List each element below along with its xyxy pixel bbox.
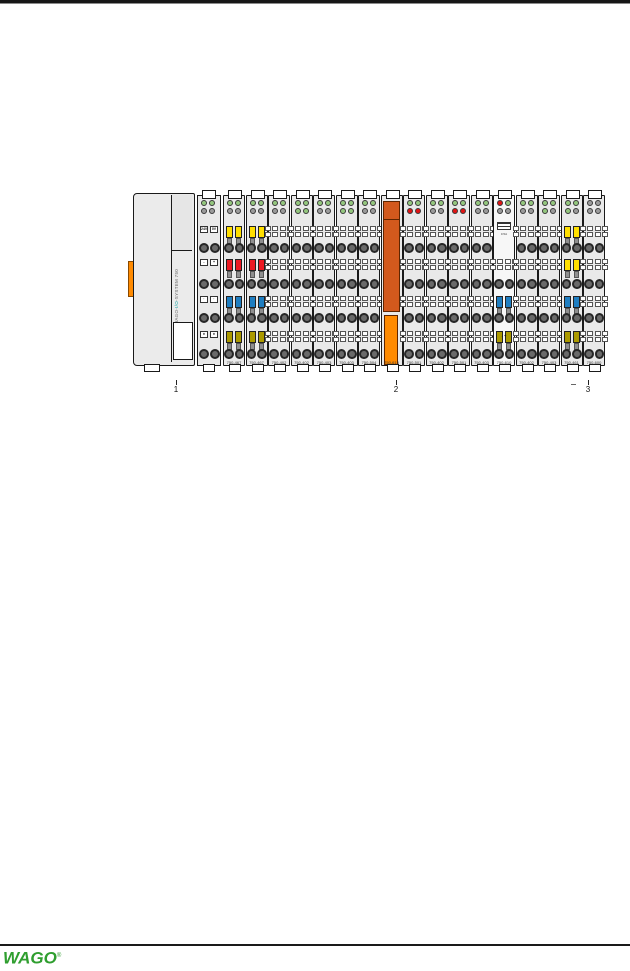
clamp-circle [325,279,335,289]
release-tab [453,190,467,199]
clamp-openings [427,279,447,289]
terminal-row [292,331,312,342]
slot-square [452,296,458,301]
clamp-circle [224,349,234,359]
terminal-slot [265,331,278,342]
slot-square [295,296,301,301]
terminal-slot [580,259,593,270]
green-led [258,200,264,206]
clamp-circle [584,243,594,253]
slot-square [303,226,309,231]
slot-square [333,226,339,231]
terminal-slot [535,296,548,307]
bottom-rule [0,944,630,946]
supply-divider [383,219,400,220]
clamp-openings [517,279,537,289]
slot-square [310,265,316,270]
callout-3: 3 [578,380,598,394]
slot-square [288,331,294,336]
gray-led [209,208,215,214]
module-foot [364,364,376,372]
slot-square [288,259,294,264]
slot-square [415,296,421,301]
slot-square [272,337,278,342]
slot-square [423,302,429,307]
slot-square [310,232,316,237]
clamp-circle [595,243,605,253]
slot-square [280,331,286,336]
green-led [250,200,256,206]
terminal-row [517,331,537,342]
slot-square [325,331,331,336]
callout-1: 1 [166,380,186,394]
slot-square [355,259,361,264]
terminal-block [564,296,571,308]
slot-square [483,337,489,342]
slot-square [483,259,489,264]
clamp-circle [505,279,515,289]
gray-led [505,208,511,214]
slot-square [340,265,346,270]
clamp-circle [337,349,347,359]
slot-square [407,226,413,231]
terminal-slot [423,226,436,237]
terminal-row [359,259,379,270]
slot-square [325,265,331,270]
clamp-openings [314,279,334,289]
terminal-slot [445,226,458,237]
terminal [573,259,580,278]
clamp-circle [415,243,425,253]
coupler-foot [144,364,160,372]
terminal-slot [265,296,278,307]
clamp-circle [584,349,594,359]
slot-square [513,296,519,301]
slot-square [272,226,278,231]
led-block [272,200,287,215]
terminal-slot [333,259,346,270]
green-led [520,200,526,206]
terminal-block [249,259,256,271]
slot-square [430,296,436,301]
clamp-circle [404,349,414,359]
slot-square [295,232,301,237]
terminal-slot [468,226,481,237]
slot-square [513,265,519,270]
red-led [497,200,503,206]
clamp-circle [314,243,324,253]
slot-square [295,302,301,307]
terminal-row [337,296,357,307]
slot-square [362,331,368,336]
red-led [460,208,466,214]
slot-square [445,232,451,237]
clamp-circle [494,349,504,359]
slot-square [310,259,316,264]
slot-square [602,296,608,301]
terminal-block [573,226,580,238]
clamp-openings [404,349,424,359]
slot-square [348,337,354,342]
terminal-row [584,331,604,342]
slot-square [475,259,481,264]
terminal-block [235,259,242,271]
slot-square [265,331,271,336]
terminal-row [404,259,424,270]
slot-square [445,296,451,301]
terminal-block [573,259,580,271]
slot-square [430,226,436,231]
green-led [452,200,458,206]
terminal-row [247,331,267,350]
slot-square [528,226,534,231]
slot-square [535,226,541,231]
terminal-slot [595,331,608,342]
terminal-row [269,226,289,237]
slot-square [310,296,316,301]
clamp-circle [550,243,560,253]
terminal-row [292,259,312,270]
clamp-openings [337,279,357,289]
terminal [258,259,265,278]
clamp-openings [337,243,357,253]
terminal-row [337,259,357,270]
slot-square [580,337,586,342]
slot-square [528,302,534,307]
power-terminal-label: ± [210,331,218,338]
fuse-rating-label: 0.5A [494,232,514,236]
slot-square [483,226,489,231]
slot-square [520,232,526,237]
terminal-slot [513,331,526,342]
slot-square [602,337,608,342]
green-led [317,200,323,206]
terminal-row [404,331,424,342]
module-end: 750-600 [583,195,605,366]
slot-square [452,302,458,307]
clamp-circle [482,349,492,359]
slot-square [602,331,608,336]
clamp-circle [572,243,582,253]
terminal-slot [310,226,323,237]
clamp-circle [235,349,245,359]
clamp-openings [314,243,334,253]
terminal-slot [400,226,413,237]
slot-square [468,265,474,270]
clamp-openings [224,349,244,359]
red-led [407,208,413,214]
gray-led [258,208,264,214]
callout-3-dash [571,384,576,385]
slot-square [460,232,466,237]
clamp-circle [235,243,245,253]
terminal [226,331,233,350]
power-label-row: -+ [198,259,220,266]
slot-square [265,265,271,270]
module-foot [477,364,489,372]
clamp-openings [494,313,514,323]
clamp-openings [198,279,220,289]
slot-square [355,296,361,301]
terminal-row [247,259,267,278]
slot-square [550,226,556,231]
release-tab [588,190,602,199]
clamp-openings [224,243,244,253]
terminal-slot [580,331,593,342]
clamp-circle [427,313,437,323]
clamp-openings [539,243,559,253]
green-led [303,208,309,214]
green-led [303,200,309,206]
slot-square [535,296,541,301]
terminal-row [337,226,357,237]
terminal-slot [288,259,301,270]
slot-square [362,296,368,301]
slot-square [535,337,541,342]
slot-square [587,265,593,270]
slot-square [370,296,376,301]
slot-square [535,302,541,307]
clamp-openings [584,313,604,323]
clamp-openings [314,313,334,323]
terminal [235,331,242,350]
slot-square [272,259,278,264]
slot-square [587,296,593,301]
terminal-row [517,296,537,307]
terminal-block [249,226,256,238]
slot-square [288,232,294,237]
supply-body-top [383,201,400,312]
power-label-row: ·· [198,296,220,303]
module-foot [454,364,466,372]
green-led [415,200,421,206]
terminal-slot [423,259,436,270]
clamp-circle [572,279,582,289]
led-block [542,200,557,215]
clamp-circle [325,313,335,323]
module-foot [432,364,444,372]
slot-square [265,259,271,264]
slot-square [340,232,346,237]
clamp-openings [359,243,379,253]
terminal-slot [310,331,323,342]
slot-square [295,226,301,231]
terminal-slot [355,331,368,342]
slot-square [325,337,331,342]
release-tab [363,190,377,199]
terminal-block [564,331,571,343]
led-block [497,200,512,215]
clamp-openings [584,349,604,359]
slot-square [468,331,474,336]
slot-square [542,296,548,301]
slot-square [265,226,271,231]
gray-led [272,208,278,214]
slot-square [475,302,481,307]
clamp-circle [449,313,459,323]
terminal-row [539,296,559,307]
release-tab [228,190,242,199]
slot-square [325,232,331,237]
slot-square [587,331,593,336]
slot-square [580,265,586,270]
clamp-circle [210,279,220,289]
led-block [452,200,467,215]
slot-square [415,331,421,336]
module-foot [522,364,534,372]
clamp-circle [505,313,515,323]
clamp-openings [517,243,537,253]
clamp-circle [337,279,347,289]
terminal-slot [445,259,458,270]
clamp-circle [437,313,447,323]
clamp-circle [224,279,234,289]
clamp-circle [562,349,572,359]
slot-square [310,337,316,342]
slot-square [280,337,286,342]
clamp-circle [482,279,492,289]
clamp-circle [210,243,220,253]
clamp-openings [562,313,582,323]
clamp-openings [539,279,559,289]
clamp-openings [449,313,469,323]
terminal-row [472,259,492,270]
terminal [564,331,571,350]
green-led [201,200,207,206]
terminal-slot [513,296,526,307]
slot-square [310,226,316,231]
clamp-openings [562,243,582,253]
slot-square [468,296,474,301]
slot-square [595,265,601,270]
slot-square [265,232,271,237]
slot-square [602,232,608,237]
slot-square [295,259,301,264]
clamp-circle [595,279,605,289]
slot-square [415,265,421,270]
slot-square [452,232,458,237]
slot-square [407,265,413,270]
slot-square [280,232,286,237]
terminal-slot [333,296,346,307]
clamp-circle [370,279,380,289]
green-led [438,200,444,206]
release-tab [318,190,332,199]
clamp-circle [472,349,482,359]
green-led [348,208,354,214]
green-led [565,200,571,206]
clamp-circle [359,243,369,253]
clamp-openings [314,349,334,359]
terminal-block [226,296,233,308]
slot-square [542,259,548,264]
slot-square [468,259,474,264]
terminal-slot [535,226,548,237]
module-foot [567,364,579,372]
slot-square [400,226,406,231]
slot-square [438,331,444,336]
clamp-circle [539,349,549,359]
slot-square [265,337,271,342]
slot-square [272,296,278,301]
slot-square [407,331,413,336]
slot-square [535,259,541,264]
clamp-circle [505,349,515,359]
slot-square [272,265,278,270]
terminal-slot [595,296,608,307]
terminal-row [449,331,469,342]
registered-trademark-icon: ® [57,953,61,959]
slot-square [550,259,556,264]
clamp-circle [325,349,335,359]
slot-square [348,296,354,301]
terminal-row [359,226,379,237]
slot-square [445,331,451,336]
clamp-circle [527,349,537,359]
clamp-openings [562,279,582,289]
clamp-circle [224,243,234,253]
slot-square [400,331,406,336]
slot-square [595,259,601,264]
slot-square [483,265,489,270]
slot-square [438,296,444,301]
clamp-openings [198,243,220,253]
slot-square [348,265,354,270]
manual-page: WAGO-I/O-SYSTEM 750 24V0V-+··±± 750-4677… [0,0,630,971]
callout-number: 1 [166,385,186,394]
terminal-stem [259,271,264,278]
slot-square [460,265,466,270]
slot-square [288,265,294,270]
terminal-row [449,259,469,270]
slot-square [430,265,436,270]
release-tab [431,190,445,199]
slot-square [602,226,608,231]
clamp-openings [562,349,582,359]
slot-square [475,232,481,237]
clamp-circle [302,279,312,289]
terminal-row [314,331,334,342]
module-foot [342,364,354,372]
clamp-circle [460,313,470,323]
terminal-row [562,331,582,350]
clamp-circle [269,313,279,323]
terminal-row [404,226,424,237]
terminal-block [573,331,580,343]
clamp-circle [359,279,369,289]
gray-led [430,208,436,214]
clamp-circle [314,349,324,359]
terminal-row [584,259,604,270]
clamp-circle [280,349,290,359]
slot-square [355,232,361,237]
slot-square [317,331,323,336]
terminal-slot [468,259,481,270]
green-led [475,200,481,206]
slot-square [333,331,339,336]
slot-square [415,232,421,237]
terminal-slot [265,259,278,270]
release-tab [566,190,580,199]
green-led [348,200,354,206]
slot-square [295,337,301,342]
terminal-slot [333,226,346,237]
slot-square [497,259,503,264]
slot-square [355,331,361,336]
slot-square [580,296,586,301]
callout-number: 2 [386,385,406,394]
coupler-top-panel [172,195,192,251]
